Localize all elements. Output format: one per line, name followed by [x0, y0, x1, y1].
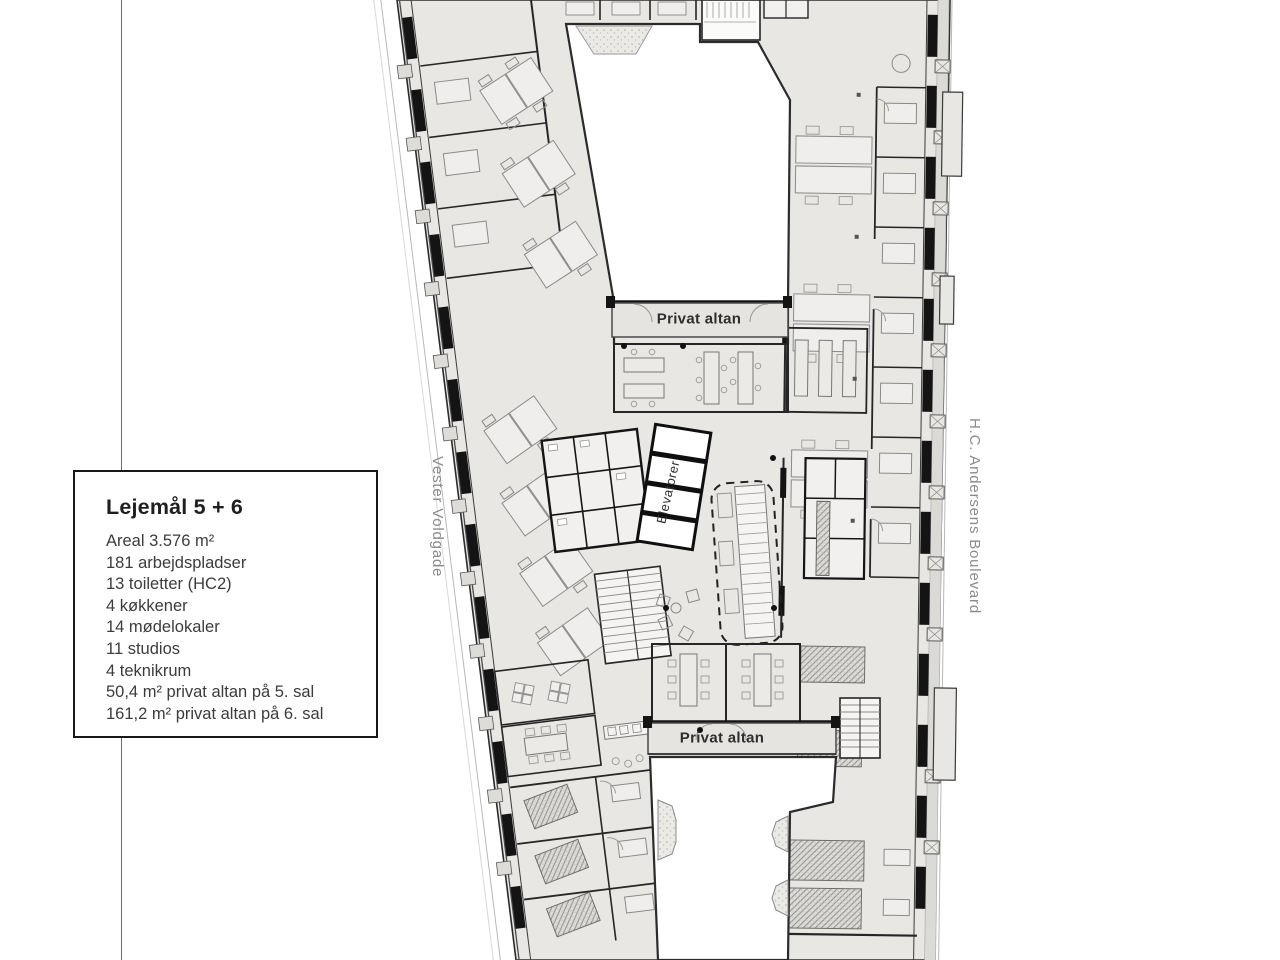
street-label-vester-voldgade: Vester Voldgade — [429, 456, 446, 577]
info-line-studios: 11 studios — [106, 639, 368, 661]
info-box-title: Lejemål 5 + 6 — [106, 495, 368, 520]
stair-top — [702, 0, 760, 40]
info-line-balcony-6: 161,2 m² privat altan på 6. sal — [106, 704, 368, 726]
toilet-cluster-right — [804, 458, 866, 579]
info-box: Lejemål 5 + 6 Areal 3.576 m² 181 arbejds… — [73, 470, 378, 738]
floor-plan-page: Lejemål 5 + 6 Areal 3.576 m² 181 arbejds… — [0, 0, 1280, 960]
info-line-balcony-5: 50,4 m² privat altan på 5. sal — [106, 682, 368, 704]
info-line-technical-rooms: 4 teknikrum — [106, 661, 368, 683]
stair-right — [840, 698, 880, 758]
toilet-cluster-left — [542, 429, 651, 552]
info-line-workplaces: 181 arbejdspladser — [106, 553, 368, 575]
info-line-toilets: 13 toiletter (HC2) — [106, 574, 368, 596]
info-line-meeting-rooms: 14 mødelokaler — [106, 617, 368, 639]
street-label-hc-andersens-boulevard: H.C. Andersens Boulevard — [966, 418, 983, 614]
info-line-kitchens: 4 køkkener — [106, 596, 368, 618]
main-stair — [594, 566, 671, 663]
balcony-bottom-label: Privat altan — [680, 730, 764, 747]
balcony-top-label: Privat altan — [657, 311, 741, 328]
info-line-areal: Areal 3.576 m² — [106, 531, 368, 553]
